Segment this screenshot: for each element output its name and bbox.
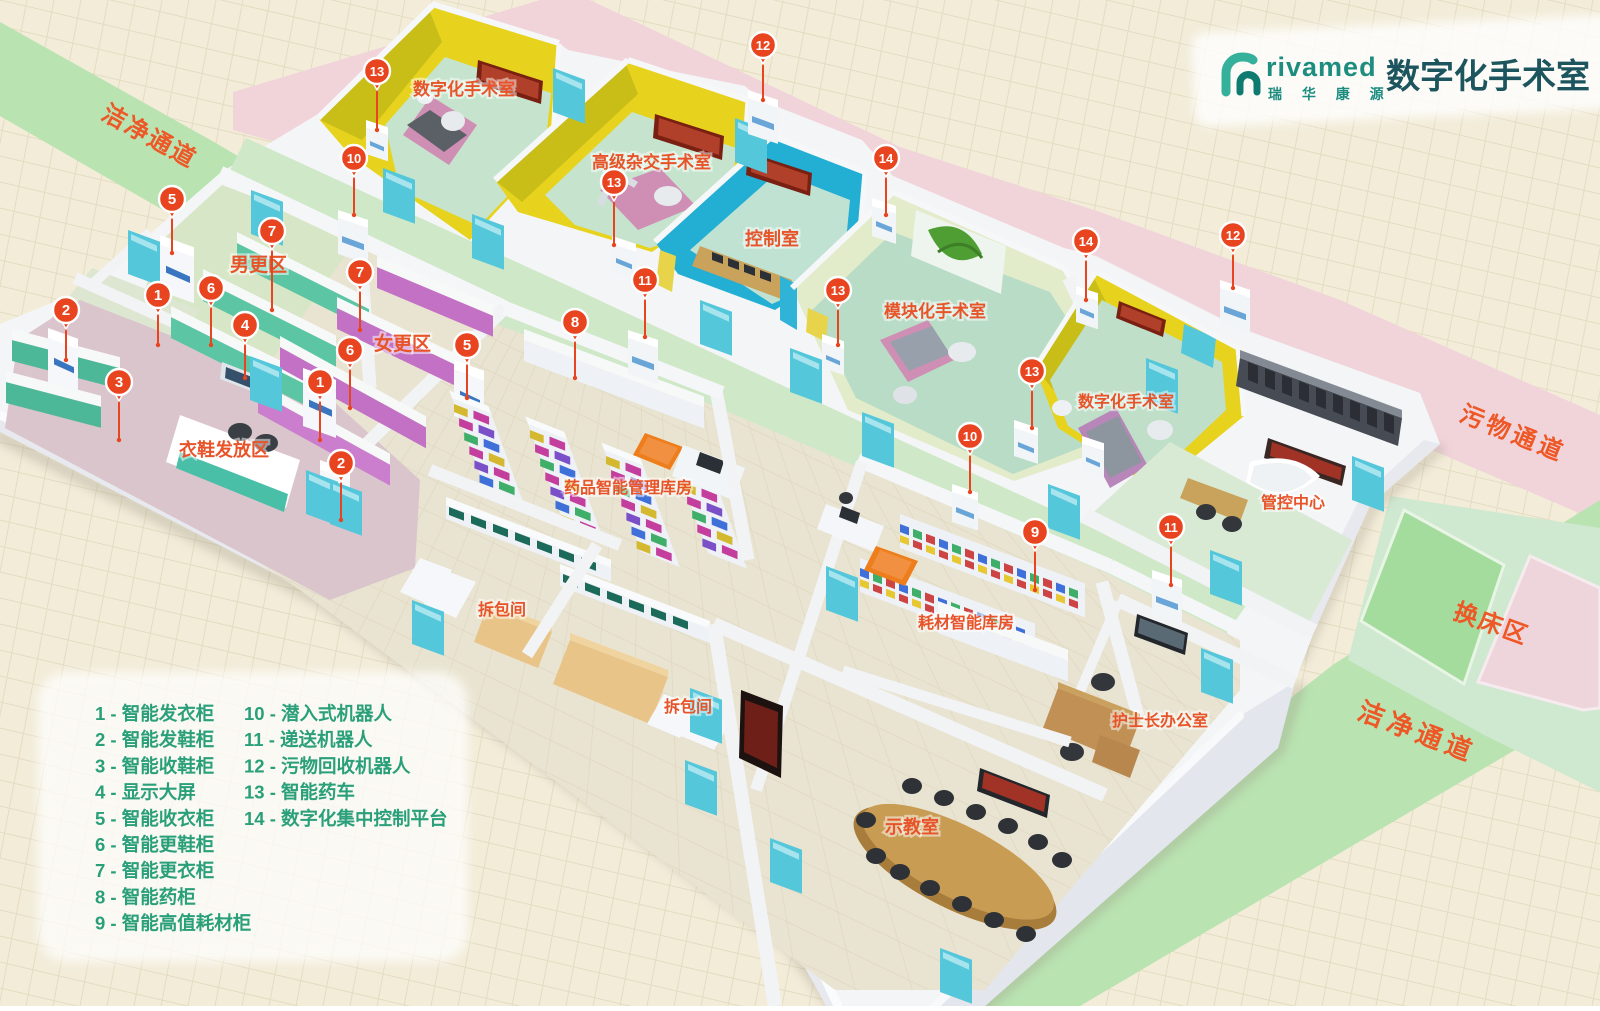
svg-text:数字化手术室: 数字化手术室 <box>1078 392 1174 411</box>
svg-text:13 - 智能药车: 13 - 智能药车 <box>244 782 355 803</box>
svg-text:拆包间: 拆包间 <box>664 697 712 716</box>
svg-text:1: 1 <box>154 287 162 304</box>
svg-text:2: 2 <box>62 302 70 319</box>
svg-text:2: 2 <box>337 455 345 472</box>
svg-text:13: 13 <box>1025 364 1039 379</box>
svg-text:数字化手术室: 数字化手术室 <box>1386 57 1590 96</box>
svg-text:12: 12 <box>1226 228 1240 243</box>
svg-text:示教室: 示教室 <box>885 816 939 837</box>
svg-text:11: 11 <box>638 273 652 288</box>
svg-text:9 - 智能高值耗材柜: 9 - 智能高值耗材柜 <box>95 913 251 934</box>
svg-text:4: 4 <box>241 317 250 334</box>
svg-text:瑞 华 康 源: 瑞 华 康 源 <box>1268 86 1392 102</box>
svg-text:模块化手术室: 模块化手术室 <box>884 301 986 321</box>
svg-text:12: 12 <box>756 38 770 53</box>
svg-text:3: 3 <box>115 374 123 391</box>
svg-text:药品智能管理库房: 药品智能管理库房 <box>564 478 692 497</box>
svg-text:7 - 智能更衣柜: 7 - 智能更衣柜 <box>95 860 214 881</box>
svg-text:rivamed: rivamed <box>1266 52 1377 82</box>
svg-text:5: 5 <box>168 191 176 208</box>
svg-text:8 - 智能药柜: 8 - 智能药柜 <box>95 886 196 907</box>
svg-text:9: 9 <box>1031 524 1039 541</box>
svg-text:1 - 智能发衣柜: 1 - 智能发衣柜 <box>95 703 214 724</box>
svg-text:拆包间: 拆包间 <box>478 600 526 619</box>
svg-text:管控中心: 管控中心 <box>1261 493 1325 512</box>
svg-text:女更区: 女更区 <box>374 332 431 355</box>
svg-text:14 - 数字化集中控制平台: 14 - 数字化集中控制平台 <box>244 808 448 829</box>
svg-text:14: 14 <box>879 151 894 166</box>
svg-text:6: 6 <box>207 280 215 297</box>
svg-text:耗材智能库房: 耗材智能库房 <box>918 613 1014 632</box>
svg-text:12 - 污物回收机器人: 12 - 污物回收机器人 <box>244 755 411 776</box>
svg-text:13: 13 <box>831 283 845 298</box>
svg-text:5: 5 <box>463 337 471 354</box>
svg-text:3 - 智能收鞋柜: 3 - 智能收鞋柜 <box>95 755 214 776</box>
svg-text:8: 8 <box>571 314 579 331</box>
svg-text:数字化手术室: 数字化手术室 <box>413 79 515 99</box>
svg-text:13: 13 <box>370 64 384 79</box>
svg-text:10 - 潜入式机器人: 10 - 潜入式机器人 <box>244 703 393 724</box>
svg-text:13: 13 <box>607 175 621 190</box>
svg-text:男更区: 男更区 <box>230 254 287 276</box>
svg-text:6: 6 <box>346 342 354 359</box>
svg-text:11 - 递送机器人: 11 - 递送机器人 <box>244 729 373 750</box>
svg-text:1: 1 <box>316 374 324 391</box>
svg-text:6 - 智能更鞋柜: 6 - 智能更鞋柜 <box>95 834 214 855</box>
svg-text:7: 7 <box>268 223 276 240</box>
svg-text:7: 7 <box>356 264 364 281</box>
svg-text:控制室: 控制室 <box>745 228 799 249</box>
svg-text:2 - 智能发鞋柜: 2 - 智能发鞋柜 <box>95 729 214 750</box>
svg-text:11: 11 <box>1164 520 1178 535</box>
svg-text:护士长办公室: 护士长办公室 <box>1112 711 1208 730</box>
svg-text:10: 10 <box>347 151 361 166</box>
svg-text:5 - 智能收衣柜: 5 - 智能收衣柜 <box>95 808 214 829</box>
svg-text:4 - 显示大屏: 4 - 显示大屏 <box>95 782 196 803</box>
svg-text:衣鞋发放区: 衣鞋发放区 <box>179 439 269 460</box>
svg-text:14: 14 <box>1079 234 1094 249</box>
svg-text:10: 10 <box>963 429 977 444</box>
